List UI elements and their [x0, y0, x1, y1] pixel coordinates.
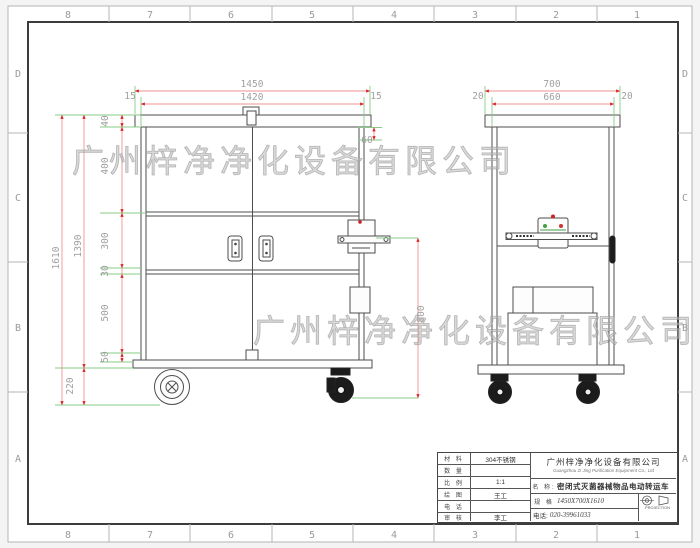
phone-label: 电话: — [533, 510, 548, 520]
phone-value: 020-39961033 — [550, 511, 591, 519]
door-handle-left-icon — [228, 236, 242, 261]
tb-label-scale: 比 例 — [438, 477, 471, 489]
zone-bot-2: 2 — [553, 530, 559, 541]
dim-side-overall-width: 700 — [543, 79, 560, 90]
tb-value-quantity — [471, 465, 531, 477]
zone-top-5: 5 — [309, 10, 315, 21]
dim-seg-40: 40 — [100, 115, 111, 127]
tb-value-drawn-by: 王工 — [471, 489, 531, 501]
dim-lid-depth: 60 — [361, 135, 373, 146]
zone-right-b: B — [682, 323, 688, 334]
spec-value: 1450X700X1610 — [557, 497, 604, 505]
zone-top-2: 2 — [553, 10, 559, 21]
tb-company-cell: 广州梓净净化设备有限公司 Guangzhou Zi Jing Purificat… — [531, 453, 676, 479]
tb-value-phone-row — [471, 501, 531, 513]
zone-top-1: 1 — [634, 10, 640, 21]
zone-left-a: A — [15, 454, 21, 465]
zone-bot-8: 8 — [65, 530, 71, 541]
spec-label: 规 格 — [531, 497, 557, 506]
side-box — [350, 287, 370, 313]
zone-bot-7: 7 — [147, 530, 153, 541]
dim-side-offset-right: 20 — [621, 91, 633, 102]
zone-bot-5: 5 — [309, 530, 315, 541]
title-block: 材 料 304不锈钢 数 量 比 例 1:1 绘 图 王工 电 话 审 核 李工… — [437, 452, 678, 523]
front-base — [133, 360, 372, 368]
side-base — [478, 365, 624, 374]
caster-icon-side-right — [577, 374, 600, 404]
drawing-sheet: 8 7 6 5 4 3 2 1 8 7 6 5 4 3 2 1 D C B A … — [0, 0, 700, 548]
company-name-cn: 广州梓净净化设备有限公司 — [531, 456, 676, 468]
zone-top-4: 4 — [391, 10, 397, 21]
dim-seg-400: 400 — [100, 157, 111, 174]
zone-left-d: D — [15, 69, 21, 80]
dim-front-inner-width: 1420 — [241, 92, 264, 103]
projection-label: PROJECTION — [645, 505, 670, 509]
tb-name-row: 名 称: 密闭式灭菌器械物品电动转运车 — [531, 479, 676, 494]
dim-seg-50: 50 — [100, 351, 111, 363]
tb-projection-cell: PROJECTION — [639, 494, 676, 521]
zone-bot-1: 1 — [634, 530, 640, 541]
company-name-en: Guangzhou Zi Jing Purification Equipment… — [538, 468, 669, 473]
caster-icon-side-left — [489, 374, 512, 404]
zone-bot-6: 6 — [228, 530, 234, 541]
tb-label-quantity: 数 量 — [438, 465, 471, 477]
zone-bot-4: 4 — [391, 530, 397, 541]
tb-value-scale: 1:1 — [471, 477, 531, 489]
zone-top-3: 3 — [472, 10, 478, 21]
battery-box — [513, 287, 593, 313]
zone-right-d: D — [682, 69, 688, 80]
dim-front-offset-right: 15 — [370, 91, 381, 102]
dim-side-inner-width: 660 — [543, 92, 560, 103]
zone-left-c: C — [15, 193, 21, 204]
dim-seg-30: 30 — [100, 265, 111, 277]
tb-label-material: 材 料 — [438, 453, 471, 465]
tb-label-phone-row: 电 话 — [438, 501, 471, 513]
zone-top-7: 7 — [147, 10, 153, 21]
tb-value-material: 304不锈钢 — [471, 453, 531, 465]
dim-right-height: 800 — [416, 305, 427, 322]
zone-right-a: A — [682, 454, 688, 465]
dim-side-offset-left: 20 — [472, 91, 484, 102]
dim-wheel-height: 220 — [65, 377, 76, 394]
zone-right-c: C — [682, 193, 688, 204]
zone-bot-3: 3 — [472, 530, 478, 541]
tb-label-checked-by: 审 核 — [438, 513, 471, 521]
tb-phone-row: 电话: 020-39961033 — [531, 509, 639, 521]
side-handle-icon — [610, 236, 615, 263]
wheel-icon — [155, 370, 190, 405]
dim-seg-300: 300 — [100, 232, 111, 249]
dim-front-offset-left: 15 — [124, 91, 135, 102]
tb-spec-row: 规 格 1450X700X1610 — [531, 494, 639, 509]
dim-front-overall-width: 1450 — [241, 79, 264, 90]
side-lid — [485, 115, 620, 127]
zone-top-8: 8 — [65, 10, 71, 21]
dim-body-height: 1390 — [73, 234, 84, 257]
tb-label-drawn-by: 绘 图 — [438, 489, 471, 501]
center-foot — [246, 350, 258, 360]
dim-total-height: 1610 — [51, 246, 62, 269]
zone-top-6: 6 — [228, 10, 234, 21]
caster-icon-front — [327, 368, 354, 403]
tb-value-checked-by: 李工 — [471, 513, 531, 521]
dim-seg-500: 500 — [100, 304, 111, 321]
lid-latch-clip — [247, 111, 256, 125]
zone-left-b: B — [15, 323, 21, 334]
door-handle-right-icon — [259, 236, 273, 261]
product-name-label: 名 称: — [531, 482, 557, 491]
product-name-value: 密闭式灭菌器械物品电动转运车 — [557, 481, 669, 492]
